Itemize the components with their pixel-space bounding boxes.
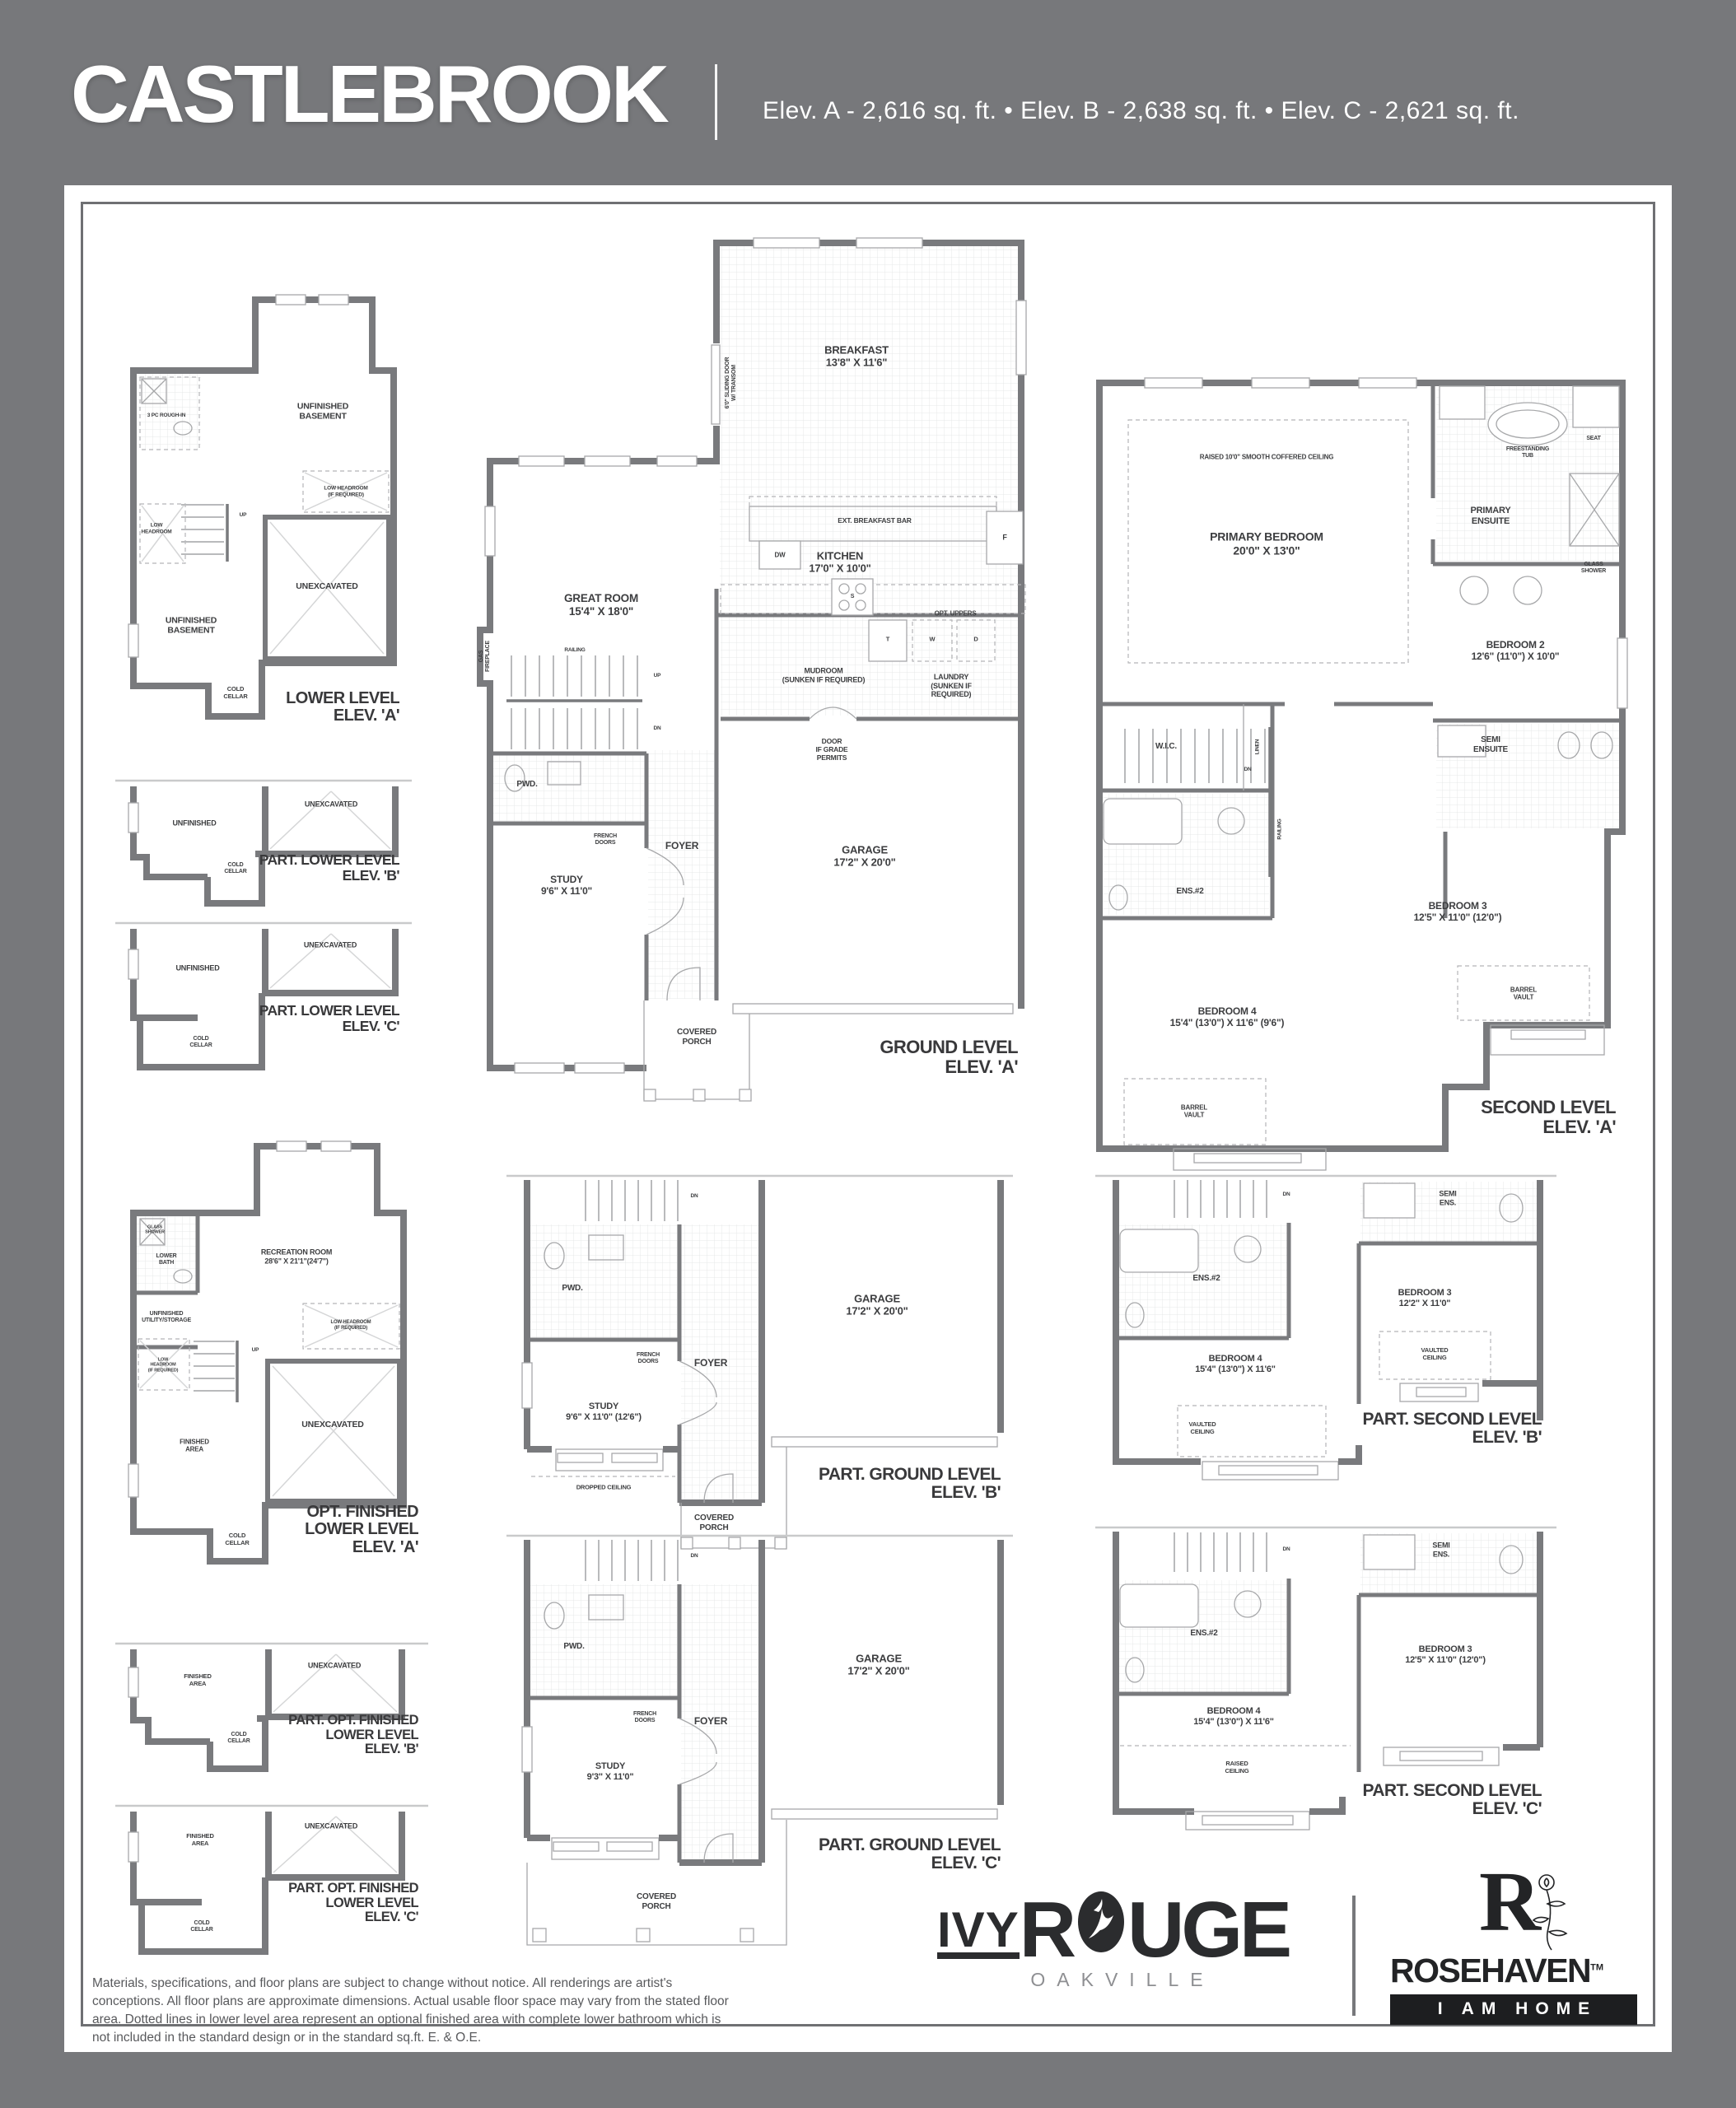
room-label-ens2: ENS.#2 [1192, 1274, 1220, 1284]
room-label-bedroom3: BEDROOM 3 12'5" X 11'0" (12'0") [1405, 1644, 1486, 1666]
floorplan-drawing [1079, 375, 1639, 1173]
stair-label-dn: DN [1283, 1192, 1290, 1198]
room-label-unfinished-basement: UNFINISHED BASEMENT [166, 616, 217, 637]
room-label-cold-cellar: COLD CELLAR [225, 1532, 249, 1547]
floorplan-drawing [115, 778, 412, 914]
room-label-ens2: ENS.#2 [1176, 887, 1203, 897]
label-barrel-vault: BARREL VAULT [1181, 1104, 1207, 1120]
room-label-bedroom2: BEDROOM 2 12'6" (11'0") X 10'0" [1472, 639, 1560, 662]
plan-title: PART. LOWER LEVEL ELEV. 'B' [259, 852, 399, 883]
label-washer: W [930, 637, 936, 644]
room-label-unexcavated: UNEXCAVATED [305, 800, 357, 809]
room-label-foyer: FOYER [694, 1357, 727, 1369]
plan-title: LOWER LEVEL ELEV. 'A' [286, 690, 399, 725]
room-label-unexcavated: UNEXCAVATED [305, 1822, 357, 1831]
stair-label-up: UP [252, 1347, 259, 1354]
room-label-powder: PWD. [562, 1284, 582, 1294]
label-raised-ceiling: RAISED CEILING [1225, 1761, 1248, 1775]
room-label-mudroom: MUDROOM (SUNKEN IF REQUIRED) [782, 666, 866, 683]
plan-title: PART. OPT. FINISHED LOWER LEVEL ELEV. 'B… [288, 1714, 418, 1757]
rosehaven-logo: R ROSEHAVENTM I AM HOME [1390, 1866, 1637, 2025]
floorplan-drawing [115, 288, 412, 749]
room-label-bedroom4: BEDROOM 4 15'4" (13'0") X 11'6" (9'6") [1170, 1005, 1285, 1028]
room-label-low-headroom: LOW HEADROOM (IF REQUIRED) [324, 485, 367, 497]
room-label-recreation: RECREATION ROOM 28'6" X 21'1"(24'7") [261, 1248, 332, 1265]
footer-logo-divider [1352, 1896, 1356, 2016]
room-label-powder: PWD. [563, 1642, 584, 1652]
room-label-wic: W.I.C. [1155, 742, 1177, 752]
room-label-finished-area: FINISHED AREA [184, 1673, 211, 1688]
label-french-doors: FRENCH DOORS [594, 833, 617, 847]
room-label-cold-cellar: COLD CELLAR [223, 686, 247, 701]
label-fridge: F [1002, 534, 1006, 543]
label-door-if-grade: DOOR IF GRADE PERMITS [815, 737, 847, 762]
room-label-study: STUDY 9'3" X 11'0" [587, 1761, 634, 1783]
room-label-cold-cellar: COLD CELLAR [224, 862, 246, 876]
stair-label-dn: DN [691, 1553, 698, 1560]
label-ext-breakfast-bar: EXT. BREAKFAST BAR [838, 516, 911, 525]
plan-title: PART. SECOND LEVEL ELEV. 'C' [1362, 1782, 1542, 1819]
room-label-unfinished: UNFINISHED [172, 819, 216, 828]
ivy-leaf-icon [1077, 1891, 1125, 1957]
label-tub: T [886, 637, 889, 644]
room-label-garage: GARAGE 17'2" X 20'0" [846, 1293, 908, 1318]
room-label-unfinished-basement: UNFINISHED BASEMENT [297, 402, 348, 422]
plan-lower-level-a: 3 PC ROUGH-IN UNFINISHED BASEMENT LOW HE… [115, 288, 412, 749]
label-dropped-ceiling: DROPPED CEILING [576, 1485, 632, 1492]
label-dishwasher: DW [775, 551, 786, 558]
stair-label-dn: DN [1283, 1546, 1290, 1553]
plan-title: PART. SECOND LEVEL ELEV. 'B' [1362, 1411, 1542, 1448]
label-dryer: D [973, 637, 978, 644]
rosehaven-tagline: I AM HOME [1390, 1994, 1637, 2025]
room-label-cold-cellar: COLD CELLAR [189, 1036, 212, 1050]
room-label-covered-porch: COVERED PORCH [694, 1513, 734, 1533]
plan-part-ground-level-b: DN PWD. GARAGE 17'2" X 20'0" FRENCH DOOR… [506, 1173, 1013, 1560]
rose-icon [1528, 1871, 1571, 1953]
page-title: CASTLEBROOK [71, 48, 667, 141]
plan-part-lower-level-b: UNFINISHED UNEXCAVATED COLD CELLAR PART.… [115, 778, 412, 914]
room-label-foyer: FOYER [694, 1715, 727, 1727]
ivyrouge-rouge-r: R [1020, 1900, 1073, 1959]
label-opt-uppers: OPT. UPPERS [935, 609, 977, 617]
plan-title: PART. LOWER LEVEL ELEV. 'C' [259, 1003, 399, 1033]
label-barrel-vault: BARREL VAULT [1510, 986, 1537, 1002]
label-sliding-door: 6'0" SLIDING DOOR W/ TRANSOM [725, 357, 738, 409]
plan-title: GROUND LEVEL ELEV. 'A' [880, 1038, 1018, 1076]
plan-part-opt-finished-lower-c: FINISHED AREA UNEXCAVATED COLD CELLAR PA… [115, 1803, 428, 1964]
room-label-utility: UNFINISHED UTILITY/STORAGE [142, 1311, 191, 1325]
stair-label-dn: DN [1244, 767, 1252, 773]
room-label-unexcavated: UNEXCAVATED [296, 581, 357, 591]
room-label-finished-area: FINISHED AREA [186, 1833, 213, 1848]
label-railing: RAILING [564, 647, 585, 654]
label-glass-shower: GLASS SHOWER [145, 1225, 165, 1236]
room-label-garage: GARAGE 17'2" X 20'0" [847, 1653, 909, 1678]
room-label-covered-porch: COVERED PORCH [637, 1892, 676, 1912]
floorplan-drawing [115, 921, 412, 1081]
room-label-covered-porch: COVERED PORCH [677, 1028, 716, 1047]
plan-title: OPT. FINISHED LOWER LEVEL ELEV. 'A' [305, 1504, 418, 1556]
room-label-foyer: FOYER [665, 840, 698, 851]
stair-label-dn: DN [654, 725, 661, 732]
room-label-unexcavated: UNEXCAVATED [304, 941, 357, 950]
room-label-powder: PWD. [516, 780, 537, 790]
room-label-laundry: LAUNDRY (SUNKEN IF REQUIRED) [912, 673, 991, 699]
room-label-bedroom3: BEDROOM 3 12'2" X 11'0" [1398, 1288, 1452, 1309]
room-label-semi-ens: SEMI ENS. [1439, 1189, 1456, 1206]
room-label-unexcavated: UNEXCAVATED [301, 1420, 363, 1429]
ivyrouge-rouge-rest: UGE [1127, 1900, 1289, 1959]
stair-label-up: UP [654, 673, 661, 679]
stair-label-dn: DN [691, 1193, 698, 1200]
room-label-bedroom4: BEDROOM 4 15'4" (13'0") X 11'6" [1195, 1354, 1276, 1375]
floorplan-brochure-page: { "colors":{"page_bg":"#77787b","wall":"… [0, 0, 1736, 2108]
room-label-garage: GARAGE 17'2" X 20'0" [833, 844, 895, 870]
label-coffered-ceiling: RAISED 10'0" SMOOTH COFFERED CEILING [1200, 453, 1334, 460]
plan-part-lower-level-c: UNFINISHED UNEXCAVATED COLD CELLAR PART.… [115, 921, 412, 1081]
label-vaulted-ceiling: VAULTED CEILING [1189, 1421, 1216, 1436]
plan-part-second-level-c: DN SEMI ENS. ENS.#2 BEDROOM 3 12'5" X 11… [1095, 1525, 1556, 1834]
label-seat: SEAT [1586, 436, 1600, 442]
room-label-finished-area: FINISHED AREA [180, 1439, 209, 1454]
room-label-bedroom4: BEDROOM 4 15'4" (13'0") X 11'6" [1193, 1706, 1274, 1728]
plan-second-level-a: RAISED 10'0" SMOOTH COFFERED CEILING PRI… [1079, 375, 1639, 1173]
plan-title: PART. GROUND LEVEL ELEV. 'C' [819, 1836, 1001, 1873]
room-label-low-headroom: LOW HEADROOM (IF REQUIRED) [331, 1320, 371, 1331]
label-railing: RAILING [1276, 818, 1282, 839]
room-label-lower-bath: LOWER BATH [156, 1253, 176, 1267]
room-label-primary-bedroom: PRIMARY BEDROOM 20'0" X 13'0" [1210, 529, 1323, 557]
plan-title: SECOND LEVEL ELEV. 'A' [1481, 1098, 1616, 1136]
label-gas-fireplace: GAS FIREPLACE [478, 641, 492, 672]
room-label-great-room: GREAT ROOM 15'4" X 18'0" [564, 592, 638, 618]
room-label-study: STUDY 9'6" X 11'0" [541, 874, 592, 897]
label-freestanding-tub: FREESTANDING TUB [1506, 446, 1549, 460]
room-label-semi-ensuite: SEMI ENSUITE [1473, 735, 1508, 755]
label-french-doors: FRENCH DOORS [637, 1352, 660, 1366]
label-vaulted-ceiling: VAULTED CEILING [1421, 1347, 1449, 1362]
room-label-cold-cellar: COLD CELLAR [227, 1732, 250, 1746]
plan-title: PART. GROUND LEVEL ELEV. 'B' [819, 1466, 1001, 1503]
room-label-cold-cellar: COLD CELLAR [190, 1920, 212, 1934]
ivyrouge-logo: IVY R UGE OAKVILLE [937, 1891, 1308, 1991]
plan-part-opt-finished-lower-b: FINISHED AREA UNEXCAVATED COLD CELLAR PA… [115, 1641, 428, 1793]
room-label-primary-ensuite: PRIMARY ENSUITE [1471, 506, 1511, 527]
room-label-kitchen: KITCHEN 17'0" X 10'0" [809, 550, 870, 576]
label-linen: LINEN [1254, 739, 1260, 755]
plan-title: PART. OPT. FINISHED LOWER LEVEL ELEV. 'C… [288, 1882, 418, 1925]
stair-label-up: UP [240, 512, 247, 519]
rosehaven-wordmark: ROSEHAVENTM [1390, 1952, 1637, 1990]
plan-ground-level-a: BREAKFAST 13'8" X 11'6" 6'0" SLIDING DOO… [469, 235, 1029, 1153]
plan-opt-finished-lower-a: GLASS SHOWER LOWER BATH RECREATION ROOM … [115, 1135, 428, 1621]
label-glass-shower: GLASS SHOWER [1581, 562, 1606, 576]
ivyrouge-ivy-text: IVY [937, 1910, 1020, 1959]
room-label-semi-ens: SEMI ENS. [1432, 1541, 1449, 1558]
header-divider [715, 64, 717, 140]
room-label-ens2: ENS.#2 [1190, 1629, 1217, 1639]
disclaimer-text: Materials, specifications, and floor pla… [92, 1975, 735, 2047]
trademark-symbol: TM [1590, 1962, 1603, 1972]
room-label-low-headroom: LOW HEADROOM [141, 522, 171, 534]
room-label-study: STUDY 9'6" X 11'0" (12'6") [566, 1401, 642, 1423]
elevation-sqft-list: Elev. A - 2,616 sq. ft. • Elev. B - 2,63… [763, 97, 1519, 125]
label-french-doors: FRENCH DOORS [633, 1711, 656, 1725]
room-label-unexcavated: UNEXCAVATED [308, 1662, 361, 1671]
room-label-rough-in: 3 PC ROUGH-IN [147, 413, 186, 419]
label-stove: S [851, 594, 854, 600]
room-label-breakfast: BREAKFAST 13'8" X 11'6" [824, 344, 889, 370]
room-label-unfinished: UNFINISHED [175, 964, 219, 973]
room-label-low-headroom: LOW HEADROOM (IF REQUIRED) [148, 1357, 179, 1373]
room-label-bedroom3: BEDROOM 3 12'5" X 11'0" (12'0") [1414, 900, 1502, 923]
plan-part-second-level-b: DN SEMI ENS. ENS.#2 BEDROOM 3 12'2" X 11… [1095, 1173, 1556, 1486]
